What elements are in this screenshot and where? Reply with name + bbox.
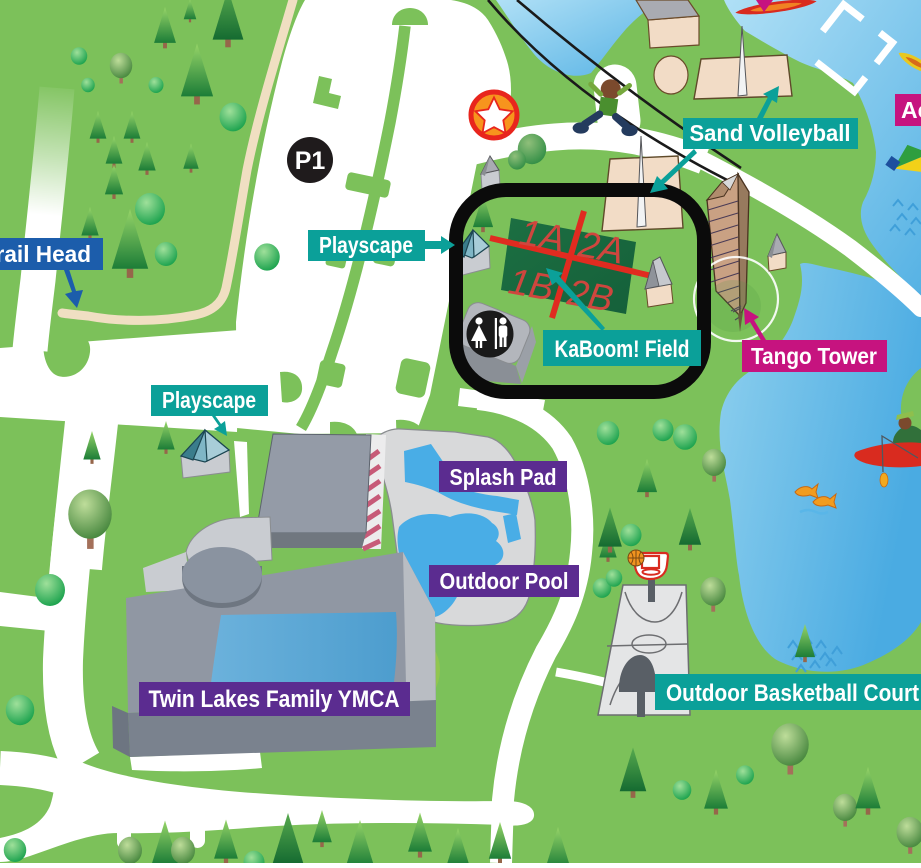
svg-text:Ac: Ac [901,97,921,123]
svg-text:Outdoor Pool: Outdoor Pool [440,568,569,594]
svg-text:Outdoor Basketball Court: Outdoor Basketball Court [666,680,919,707]
svg-text:P1: P1 [295,147,326,175]
svg-text:Twin Lakes Family YMCA: Twin Lakes Family YMCA [149,686,400,713]
svg-text:Sand Volleyball: Sand Volleyball [690,120,851,146]
svg-text:1B: 1B [506,260,558,308]
svg-text:Trail Head: Trail Head [0,241,91,267]
svg-text:KaBoom! Field: KaBoom! Field [555,336,690,363]
svg-text:Splash Pad: Splash Pad [450,464,557,490]
svg-text:2A: 2A [575,223,628,271]
svg-text:Playscape: Playscape [319,232,413,258]
svg-text:Playscape: Playscape [162,387,256,413]
svg-text:Tango Tower: Tango Tower [751,343,877,369]
svg-text:1A: 1A [517,211,569,259]
